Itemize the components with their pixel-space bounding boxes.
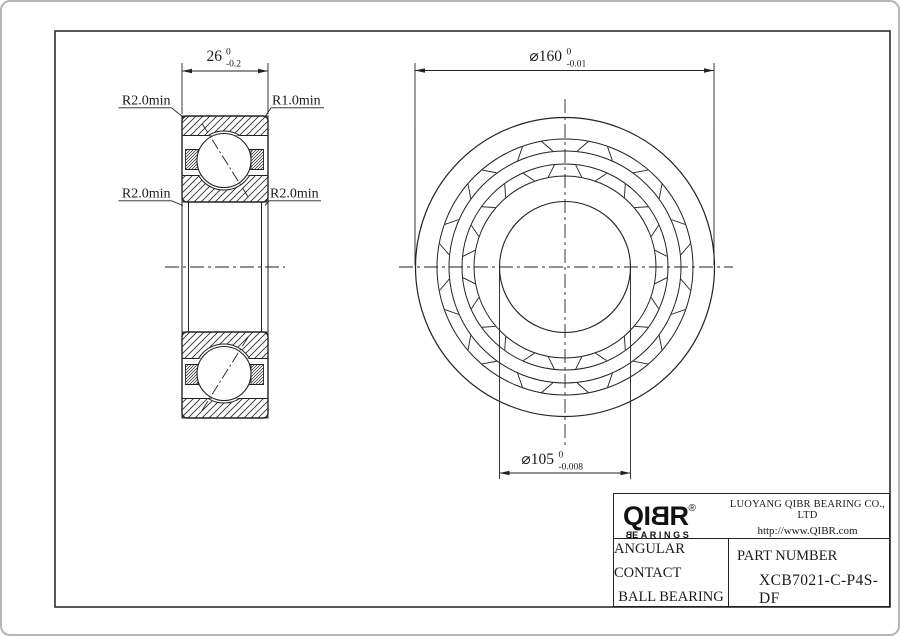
- arrowhead-left-icon: [415, 68, 425, 73]
- radius-label-text: R2.0min: [270, 187, 319, 202]
- title-block-bottom-row: ANGULAR CONTACT BALL BEARING PART NUMBER…: [614, 539, 889, 606]
- cage-pocket-line: [463, 250, 475, 256]
- radius-label-text: R1.0min: [272, 94, 321, 109]
- arrowhead-left-icon: [500, 471, 510, 476]
- radius-label-mid-left: R2.0min: [119, 187, 184, 206]
- radius-label-text: R2.0min: [122, 94, 171, 109]
- cage-pocket-line: [651, 298, 658, 309]
- registered-mark-icon: ®: [689, 503, 696, 514]
- company-name: LUOYANG QIBR BEARING CO., LTD: [726, 499, 889, 521]
- cage-pocket-line: [542, 142, 553, 152]
- cage-pocket-line: [659, 335, 662, 349]
- dim-bore-upper-tol: 0: [559, 451, 564, 461]
- cage-pocket-line: [518, 373, 523, 387]
- cage-pocket-line: [635, 326, 648, 327]
- dim-bore-value: ⌀105: [521, 451, 554, 468]
- cage-pocket-line: [576, 357, 582, 369]
- logo-letter-b: B: [651, 503, 670, 529]
- logo-letters: QI: [623, 501, 651, 531]
- dim-bore-lower-tol: -0.008: [559, 463, 584, 473]
- cage-pocket-line: [471, 225, 478, 236]
- drawing-page: 26 0 -0.2 ⌀160 0 -0.01 ⌀105 0 -0.008 R2.…: [0, 0, 900, 636]
- cage-pocket-line: [468, 184, 471, 198]
- cage-pocket-line: [608, 147, 613, 161]
- dim-width-value: 26: [207, 48, 223, 65]
- part-number-value: XCB7021-C-P4S-DF: [737, 572, 889, 608]
- cage-pocket-line: [624, 337, 625, 350]
- cage-pocket-line: [608, 373, 613, 387]
- cage-pocket-line: [576, 165, 582, 177]
- radius-label-top-left: R2.0min: [119, 94, 184, 118]
- cage-pocket-line: [482, 361, 496, 364]
- bearing-type-line1: ANGULAR CONTACT: [614, 537, 728, 585]
- bearing-type: ANGULAR CONTACT BALL BEARING: [614, 539, 729, 606]
- dim-width-lower-tol: -0.2: [226, 60, 241, 70]
- cage-pocket-line: [445, 220, 459, 225]
- cage-pocket-line: [596, 173, 607, 180]
- cage-pocket-line: [523, 173, 534, 180]
- cage-pocket-line: [445, 310, 459, 315]
- part-number-cell: PART NUMBER XCB7021-C-P4S-DF: [729, 539, 889, 606]
- title-block-top-row: QIBR® BEARINGS LUOYANG QIBR BEARING CO.,…: [614, 494, 889, 539]
- cage-pocket-line: [440, 279, 450, 290]
- logo-wordmark: QIBR®: [623, 496, 726, 529]
- cage-section-right: [251, 365, 264, 385]
- section-bottom-half: [182, 332, 268, 418]
- title-block: QIBR® BEARINGS LUOYANG QIBR BEARING CO.,…: [613, 493, 890, 607]
- cage-pocket-line: [482, 207, 495, 208]
- logo-sub-letter-b: B: [623, 530, 632, 540]
- logo: QIBR® BEARINGS: [614, 494, 726, 538]
- ball: [197, 347, 251, 401]
- leader-line: [119, 108, 184, 117]
- leader-line: [265, 201, 321, 206]
- cage-pocket-line: [548, 357, 554, 369]
- leader-line: [265, 108, 324, 117]
- cage-section-left: [186, 365, 199, 385]
- cage-pocket-line: [468, 335, 471, 349]
- leader-line: [119, 201, 184, 206]
- cage-pocket-line: [671, 310, 685, 315]
- arrowhead-right-icon: [621, 471, 631, 476]
- cage-pocket-line: [624, 184, 625, 197]
- cage-pocket-line: [596, 353, 607, 360]
- cage-pocket-line: [681, 244, 691, 255]
- cage-pocket-line: [655, 278, 667, 284]
- cage-pocket-line: [635, 207, 648, 208]
- arrowhead-right-icon: [258, 69, 268, 74]
- logo-letter-r: R: [670, 501, 689, 531]
- cage-pocket-line: [548, 165, 554, 177]
- section-top-half: [182, 116, 268, 202]
- cage-pocket-line: [440, 244, 450, 255]
- company-info: LUOYANG QIBR BEARING CO., LTD http://www…: [726, 494, 889, 538]
- cage-pocket-line: [633, 361, 647, 364]
- cage-pocket-line: [655, 250, 667, 256]
- cage-pocket-line: [671, 220, 685, 225]
- cage-pocket-line: [577, 142, 588, 152]
- section-view: [165, 116, 285, 418]
- cage-pocket-line: [633, 170, 647, 173]
- cage-pocket-line: [463, 278, 475, 284]
- dim-width: 26 0 -0.2: [182, 48, 268, 115]
- ball: [197, 134, 251, 188]
- dim-od-lower-tol: -0.01: [567, 60, 587, 70]
- cage-pocket-line: [482, 326, 495, 327]
- dim-outer-diameter: ⌀160 0 -0.01: [415, 48, 714, 266]
- arrowhead-right-icon: [704, 68, 714, 73]
- cage-pocket-line: [681, 279, 691, 290]
- cage-pocket-line: [505, 184, 506, 197]
- cage-pocket-line: [542, 383, 553, 393]
- dim-width-upper-tol: 0: [226, 48, 231, 58]
- radius-label-text: R2.0min: [122, 187, 171, 202]
- cage-pocket-line: [471, 298, 478, 309]
- cage-section-right: [251, 150, 264, 170]
- cage-pocket-line: [518, 147, 523, 161]
- cage-pocket-line: [577, 383, 588, 393]
- cage-pocket-line: [523, 353, 534, 360]
- dim-od-upper-tol: 0: [567, 48, 572, 58]
- cage-pocket-line: [659, 184, 662, 198]
- cage-pocket-line: [482, 170, 496, 173]
- cage-pocket-line: [505, 337, 506, 350]
- bearing-type-line2: BALL BEARING: [618, 585, 723, 609]
- cage-pocket-line: [651, 225, 658, 236]
- radius-label-mid-right: R2.0min: [265, 187, 321, 206]
- company-website: http://www.QIBR.com: [726, 525, 889, 537]
- arrowhead-left-icon: [182, 69, 192, 74]
- radius-label-top-right: R1.0min: [265, 94, 324, 118]
- dim-od-value: ⌀160: [529, 48, 562, 65]
- cage-section-left: [186, 150, 199, 170]
- front-view: [399, 99, 733, 448]
- part-number-label: PART NUMBER: [737, 548, 889, 565]
